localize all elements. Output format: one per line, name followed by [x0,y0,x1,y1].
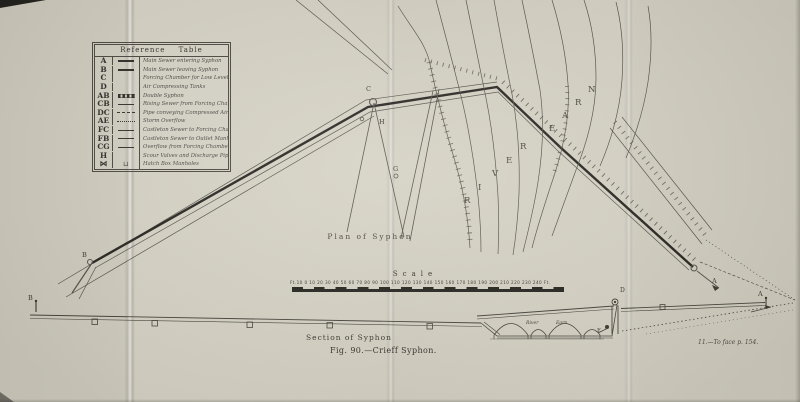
end-dot [35,300,37,302]
row-symbol [113,91,140,100]
river-contours [398,0,651,255]
hatched-parapet-band [503,82,696,261]
section-drawing [30,297,793,339]
river-contour-line [626,6,651,158]
river-name-letter: N [588,85,595,95]
scale-bar [292,287,564,292]
row-key: ⋈ [95,160,113,168]
bridge-arch [494,324,528,336]
hatched-band [615,122,706,236]
row-symbol [113,143,140,152]
section-label-e: E [597,329,601,335]
plan-label-a: A [712,278,717,285]
plan-label-h: H [379,119,385,126]
row-symbol [113,83,140,92]
section-label-river: River [526,322,538,327]
row-description: Scour Valves and Discharge Pipes [140,153,228,159]
reference-table-row: CBRising Sewer from Forcing Chamber [95,100,228,109]
plan-title: Plan of Syphon [300,232,440,241]
section-label-b: B [28,295,33,302]
row-description: Main Sewer leaving Syphon [140,67,228,73]
reference-table-row: AEStorm Overflow [95,117,228,126]
plan-label-g: G [393,166,398,173]
flush-box-square [247,322,253,328]
road-line [622,117,712,230]
river-name-letter: I [478,183,481,193]
river-contour-line [600,2,623,166]
section-label-a: A [758,291,763,298]
row-description: Castleton Sewer to Forcing Chamber [140,127,228,133]
river-name-letter: E [549,124,555,134]
row-description: Forcing Chamber for Low Level Sewage [140,75,228,81]
row-symbol [113,126,140,135]
river-name-letter: R [464,196,470,206]
reference-table-row: DAir Compressing Tanks [95,83,228,92]
row-description: Pipe conveying Compressed Air [140,110,228,116]
river-name-letter: E [506,156,512,166]
bridge-arches [490,324,604,340]
line-style-icon [118,60,134,62]
bridge-deck-line [477,306,614,316]
pipe-line [401,91,433,238]
reference-table-row: CForcing Chamber for Low Level Sewage [95,74,228,83]
river-name-letter: A [562,111,568,121]
row-description: Storm Overflow [140,118,228,124]
row-key: FC [95,126,113,134]
road-line [610,128,702,244]
scale-title: Scale [355,270,475,278]
plan-label-c: C [366,86,371,93]
row-symbol [113,74,140,83]
river-contour-line [552,0,596,236]
reference-table-row: AMain Sewer entering Syphon [95,57,228,66]
reference-table-row: HScour Valves and Discharge Pipes [95,152,228,161]
bridge-arch [531,330,546,336]
line-style-icon [118,94,135,98]
manhole-circle [691,265,697,271]
line-style-icon [118,130,134,131]
flush-box-square [152,321,158,327]
box-manhole-icon: ⊔ [123,161,128,167]
pipe-line [410,89,439,241]
reference-table-rows: AMain Sewer entering SyphonBMain Sewer l… [95,57,228,169]
row-symbol [113,134,140,143]
row-symbol [113,109,140,118]
section-title: Section of Syphon [306,333,392,342]
row-symbol [113,117,140,126]
reference-table-row: FBCastleton Sewer to Outlet Manhole [95,134,228,143]
reference-table-row: BMain Sewer leaving Syphon [95,66,228,75]
scale-tick-labels: Ft.10 0 10 20 30 40 50 60 70 80 90 100 1… [290,280,566,285]
stippled-ground-line [646,310,793,334]
reference-table-row: ⋈⊔Hatch Box Manholes [95,160,228,169]
line-style-icon [118,104,134,105]
river-contour-line [466,0,499,254]
arrowhead [765,305,771,309]
section-label-d: D [620,288,625,294]
row-symbol [113,152,140,161]
row-description: Overflow from Forcing Chamber [140,144,228,150]
road-line [296,0,388,74]
manhole-circle [360,117,364,121]
row-symbol [113,66,140,75]
river-name-letter: R [520,142,526,152]
river-bank-hatching [429,62,470,242]
end-dot [765,297,767,299]
sewer-outfall-branch [72,263,92,293]
river-bank-line [398,6,470,248]
plate-note: 11.—To face p. 154. [698,339,758,346]
river-name-letter: V [492,169,498,179]
flush-box-square [427,324,433,330]
bridge-deck-line [477,309,614,319]
river-name-letter: R [575,98,581,108]
line-style-icon [117,112,135,113]
reference-table: Reference Table AMain Sewer entering Syp… [94,44,229,170]
line-style-icon [118,69,134,71]
road-line [318,0,392,70]
line-style-icon [117,121,135,122]
row-description: Castleton Sewer to Outlet Manhole [140,136,228,142]
flush-box-square [327,323,333,329]
reference-table-title: Reference Table [95,45,228,57]
reference-table-row: ABDouble Syphon [95,91,228,100]
row-key: D [95,83,113,91]
reference-table-row: DCPipe conveying Compressed Air [95,109,228,118]
row-description: Air Compressing Tanks [140,84,228,90]
row-description: Double Syphon [140,93,228,99]
figure-caption: Fig. 90.—Crieff Syphon. [330,346,437,355]
river-contour-line [494,0,519,255]
line-style-icon [118,147,134,148]
reference-table-row: FCCastleton Sewer to Forcing Chamber [95,126,228,135]
row-symbol [113,57,140,66]
row-symbol [113,100,140,109]
section-pipe-top [621,303,765,309]
section-pipe-bottom [621,306,765,312]
scanned-engineering-plate: Reference Table AMain Sewer entering Syp… [0,0,800,402]
row-description: Rising Sewer from Forcing Chamber [140,101,228,107]
section-label-earn: Earn [556,322,567,327]
reference-table-row: CGOverflow from Forcing Chamber [95,143,228,152]
line-style-icon [118,138,134,139]
manhole-circle [394,174,398,178]
row-description: Hatch Box Manholes [140,161,228,167]
row-description: Main Sewer entering Syphon [140,58,228,64]
air-vessel-dot [614,301,616,303]
syphon-dip-pipe [484,322,500,335]
forcing-chamber-circle [370,99,377,106]
plan-label-b: B [82,252,87,259]
row-symbol: ⊔ [113,160,140,169]
sewer-outfall-branch [79,267,96,299]
hatched-band [425,60,499,79]
